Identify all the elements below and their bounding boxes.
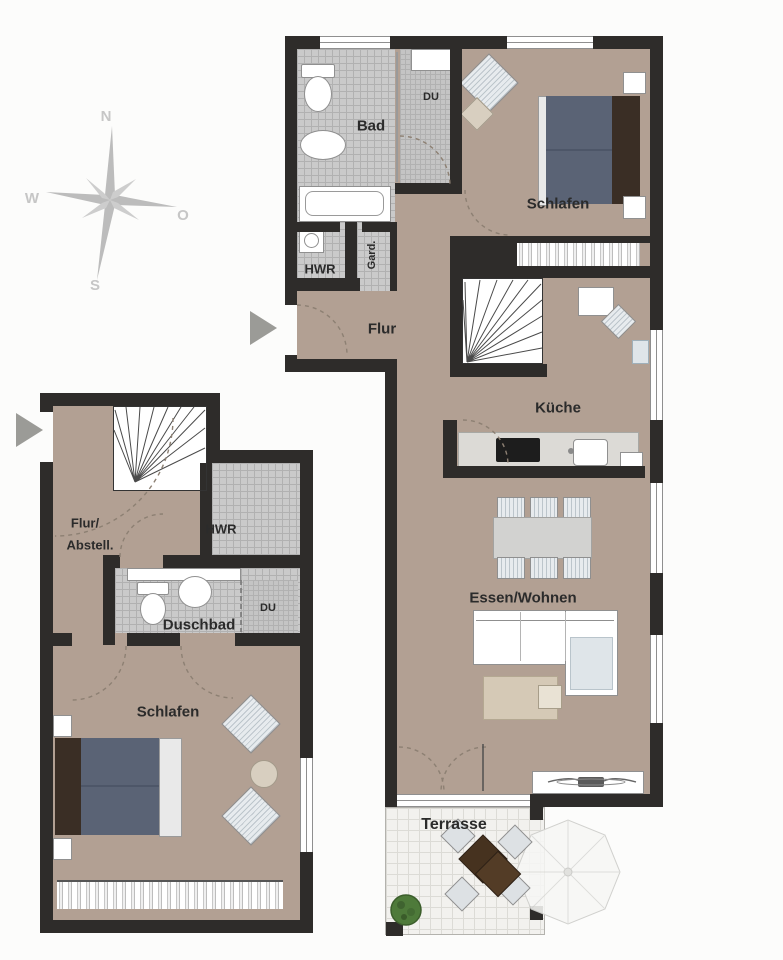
compass-n: N xyxy=(101,108,112,125)
wall-segment xyxy=(650,723,663,807)
compass-s: S xyxy=(90,277,100,294)
wall-segment xyxy=(235,633,313,646)
dining-chair xyxy=(530,497,558,519)
room-label-kueche: Küche xyxy=(535,400,581,417)
wall-segment xyxy=(40,393,53,412)
room-label-flur-line1: Flur/ xyxy=(71,516,99,531)
wall-segment xyxy=(40,920,313,933)
kitchen-sink xyxy=(573,439,608,466)
sink xyxy=(300,130,346,160)
sofa-cushion-line xyxy=(520,612,521,661)
wall-segment xyxy=(386,922,403,936)
nightstand xyxy=(53,838,72,860)
cooktop xyxy=(496,438,540,462)
sofa-back-line xyxy=(476,620,614,621)
wall-segment xyxy=(127,633,180,646)
wall-segment xyxy=(455,466,645,478)
window xyxy=(650,330,663,420)
entrance-arrow-lower-unit xyxy=(16,413,43,447)
faucet xyxy=(568,448,574,454)
toilet-bowl xyxy=(304,76,332,112)
compass-o: O xyxy=(177,207,189,224)
terrace-door-threshold xyxy=(397,794,530,807)
wall-segment xyxy=(385,372,397,807)
kitchen-counter xyxy=(458,432,639,468)
window xyxy=(507,36,593,49)
staircase-lower-unit xyxy=(113,406,207,491)
round-side-table xyxy=(250,760,278,788)
chaise-cushion xyxy=(570,637,613,690)
wall-segment xyxy=(650,36,663,330)
wall-segment xyxy=(103,555,115,645)
room-label-gard: Gard. xyxy=(366,241,378,270)
room-label-schlafen-lower: Schlafen xyxy=(137,704,200,721)
entrance-arrow-upper-unit xyxy=(250,311,277,345)
wall-segment xyxy=(40,393,220,406)
washing-machine-drum-icon xyxy=(304,233,319,248)
shower-shelf xyxy=(411,49,451,71)
wall-segment xyxy=(530,794,663,807)
room-label-du-upper: DU xyxy=(423,91,439,103)
wall-segment xyxy=(285,278,360,291)
wall-segment xyxy=(450,236,517,278)
wall-segment xyxy=(530,906,543,920)
wall-segment xyxy=(517,236,650,243)
dining-chair xyxy=(563,557,591,579)
wall-segment xyxy=(207,555,313,568)
bed-center-line xyxy=(81,785,159,787)
room-label-hwr-upper: HWR xyxy=(304,262,335,277)
wall-segment xyxy=(200,463,212,567)
room-label-bad: Bad xyxy=(357,118,385,135)
wall-segment xyxy=(390,222,397,291)
wall-segment xyxy=(285,36,297,305)
wall-segment xyxy=(390,36,507,49)
wall-segment xyxy=(450,49,462,194)
room-label-essen-wohnen: Essen/Wohnen xyxy=(469,590,576,607)
wall-segment xyxy=(285,359,397,372)
wall-segment xyxy=(450,364,547,377)
window xyxy=(650,483,663,573)
room-label-duschbad: Duschbad xyxy=(163,617,236,634)
room-label-du-lower: DU xyxy=(260,602,276,614)
staircase-upper-unit xyxy=(462,278,543,364)
wall-segment xyxy=(207,450,313,463)
wardrobe xyxy=(57,880,283,909)
window xyxy=(320,36,390,49)
utility-floor-lower xyxy=(212,463,300,555)
nightstand xyxy=(623,196,646,219)
bed-headboard xyxy=(55,738,81,835)
bed-headboard xyxy=(612,96,640,204)
room-label-hwr-lower: HWR xyxy=(205,522,236,537)
desk xyxy=(578,287,614,316)
wall-segment xyxy=(285,222,340,232)
sofa-cushion-line xyxy=(565,612,566,661)
room-label-flur-line2: Abstell. xyxy=(67,538,114,553)
bed-linen xyxy=(159,738,182,837)
round-sink xyxy=(178,576,212,608)
compass-w: W xyxy=(25,190,40,207)
dining-chair xyxy=(530,557,558,579)
dining-chair xyxy=(497,557,525,579)
coffee-table xyxy=(538,685,562,709)
wall-segment xyxy=(517,266,650,278)
wall-segment xyxy=(650,420,663,483)
bathtub-inner xyxy=(305,191,384,216)
room-label-terrasse: Terrasse xyxy=(421,816,487,834)
nightstand xyxy=(623,72,646,94)
room-label-schlafen-upper: Schlafen xyxy=(527,196,590,213)
wall-segment xyxy=(395,183,462,194)
wall-segment xyxy=(53,633,72,646)
wall-segment xyxy=(40,462,53,933)
dining-chair xyxy=(497,497,525,519)
wall-segment xyxy=(300,450,313,758)
nightstand xyxy=(53,715,72,737)
wall-segment xyxy=(450,278,462,377)
desk-side-unit xyxy=(632,340,649,364)
wall-segment xyxy=(650,573,663,635)
bed-center-line xyxy=(546,149,612,151)
window xyxy=(300,758,313,852)
window xyxy=(650,635,663,723)
compass-rose: N W O S xyxy=(25,108,189,294)
floor-plan-canvas: N W O S Bad DU Schlafen HWR Gard. Flur K… xyxy=(0,0,783,960)
wall-segment xyxy=(530,807,543,820)
built-in-wardrobe xyxy=(517,243,640,266)
room-label-flur: Flur xyxy=(368,321,396,338)
dining-table xyxy=(493,517,592,559)
window-sill-radiator xyxy=(532,771,644,794)
wall-segment xyxy=(163,555,207,568)
dining-chair xyxy=(563,497,591,519)
